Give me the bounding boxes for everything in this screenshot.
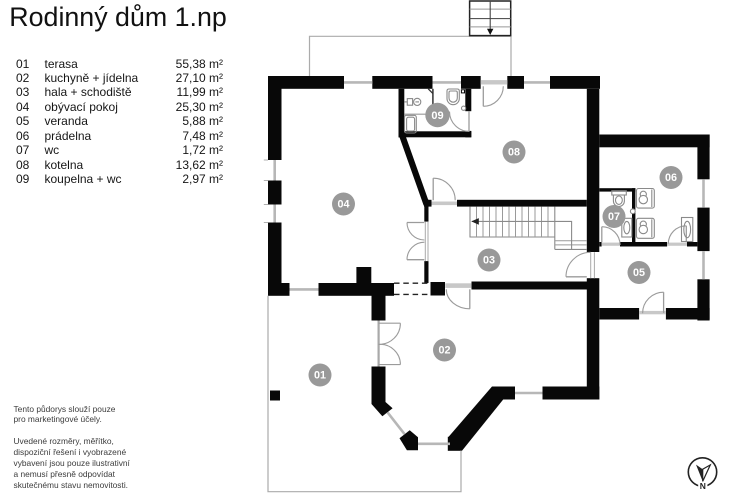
svg-text:N: N — [700, 481, 706, 491]
svg-text:06: 06 — [665, 172, 677, 184]
svg-text:04: 04 — [337, 199, 349, 211]
svg-text:05: 05 — [633, 267, 645, 279]
svg-text:09: 09 — [431, 110, 443, 122]
svg-text:03: 03 — [483, 255, 495, 267]
svg-text:08: 08 — [508, 147, 520, 159]
svg-text:07: 07 — [608, 211, 620, 223]
svg-text:01: 01 — [314, 370, 326, 382]
svg-text:02: 02 — [438, 345, 450, 357]
